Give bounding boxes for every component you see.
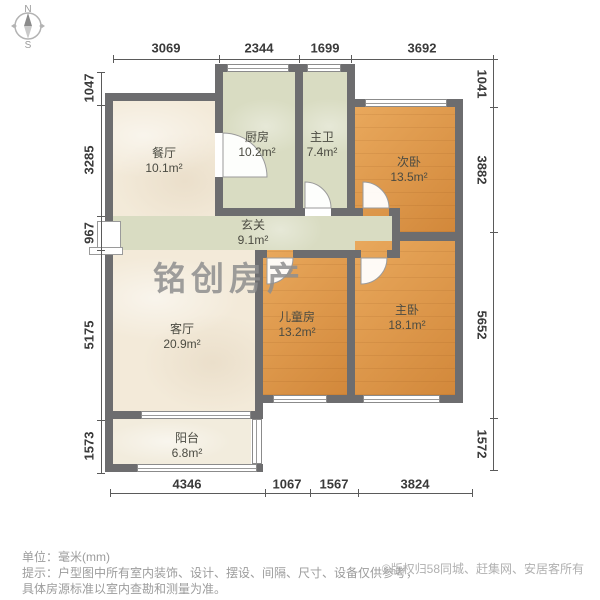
dim-bottom-3: 1567 [320,477,349,492]
kitchen-name: 厨房 [238,130,275,145]
floorplan-image: N S 铭创房产 餐厅 10.1m² 厨房 10.2m² 主卫 7.4m² 次卧… [0,0,600,600]
dining-name: 餐厅 [145,146,182,161]
dim-tick [113,55,114,63]
dim-bottom-1: 4346 [173,477,202,492]
dim-right-1: 1041 [475,70,490,99]
hall-label: 玄关 9.1m² [238,218,269,248]
dim-tick [490,418,498,419]
child-area: 13.2m² [278,325,315,340]
master-name: 主卧 [388,303,425,318]
dim-top-3: 1699 [311,41,340,56]
living-label: 客厅 20.9m² [163,322,200,352]
dim-bottom-2: 1067 [273,477,302,492]
master-label: 主卧 18.1m² [388,303,425,333]
tip-line-2: 具体房源标准以室内查勘和测量为准。 [22,580,226,597]
dim-tick [490,107,498,108]
balcony-label: 阳台 6.8m² [172,431,203,461]
dim-left-3: 967 [82,222,97,244]
bedroom2-label: 次卧 13.5m² [390,155,427,185]
dim-tick [310,489,311,497]
dining-label: 餐厅 10.1m² [145,146,182,176]
dim-tick [490,59,498,60]
dim-tick [110,489,111,497]
dining-area: 10.1m² [145,161,182,176]
dim-line-bottom [110,493,472,494]
bath-area: 7.4m² [307,145,338,160]
dim-line-left [101,72,102,473]
bedroom2-door-arc [363,182,389,208]
child-label: 儿童房 13.2m² [278,310,315,340]
dim-tick [358,489,359,497]
bath-door-arc [305,182,331,208]
hall-area: 9.1m² [238,233,269,248]
bedroom2-area: 13.5m² [390,170,427,185]
dim-bottom-4: 3824 [401,477,430,492]
kitchen-area: 10.2m² [238,145,275,160]
dim-left-1: 1047 [82,74,97,103]
balcony-area: 6.8m² [172,446,203,461]
copyright-note: ©版权归58同城、赶集网、安居客所有 [382,560,584,577]
dim-tick [472,489,473,497]
dim-tick [97,72,105,73]
dim-line-right [493,59,494,470]
dim-right-4: 1572 [475,430,490,459]
dim-tick [299,55,300,63]
dim-tick [97,420,105,421]
dim-right-2: 3882 [475,156,490,185]
dim-tick [219,55,220,63]
dim-tick [97,216,105,217]
hall-name: 玄关 [238,218,269,233]
dim-tick [351,55,352,63]
dim-right-3: 5652 [475,311,490,340]
master-area: 18.1m² [388,318,425,333]
bedroom2-name: 次卧 [390,155,427,170]
child-name: 儿童房 [278,310,315,325]
unit-note: 单位：毫米(mm) [22,548,110,565]
dim-top-2: 2344 [245,41,274,56]
living-name: 客厅 [163,322,200,337]
dim-left-5: 1573 [82,432,97,461]
dim-tick [265,489,266,497]
dim-tick [490,232,498,233]
dim-left-2: 3285 [82,146,97,175]
dim-tick [490,470,498,471]
balcony-name: 阳台 [172,431,203,446]
bath-label: 主卫 7.4m² [307,130,338,160]
kitchen-label: 厨房 10.2m² [238,130,275,160]
dim-tick [97,473,105,474]
dim-top-1: 3069 [152,41,181,56]
dim-tick [97,250,105,251]
agency-watermark: 铭创房产 [153,252,305,300]
dim-top-4: 3692 [408,41,437,56]
dim-tick [97,105,105,106]
dim-line-top [113,59,493,60]
dim-left-4: 5175 [82,321,97,350]
master-door-arc [361,258,387,284]
bath-name: 主卫 [307,130,338,145]
tip-line-1: 提示：户型图中所有室内装饰、设计、摆设、间隔、尺寸、设备仅供参考， [22,564,418,581]
living-area: 20.9m² [163,337,200,352]
